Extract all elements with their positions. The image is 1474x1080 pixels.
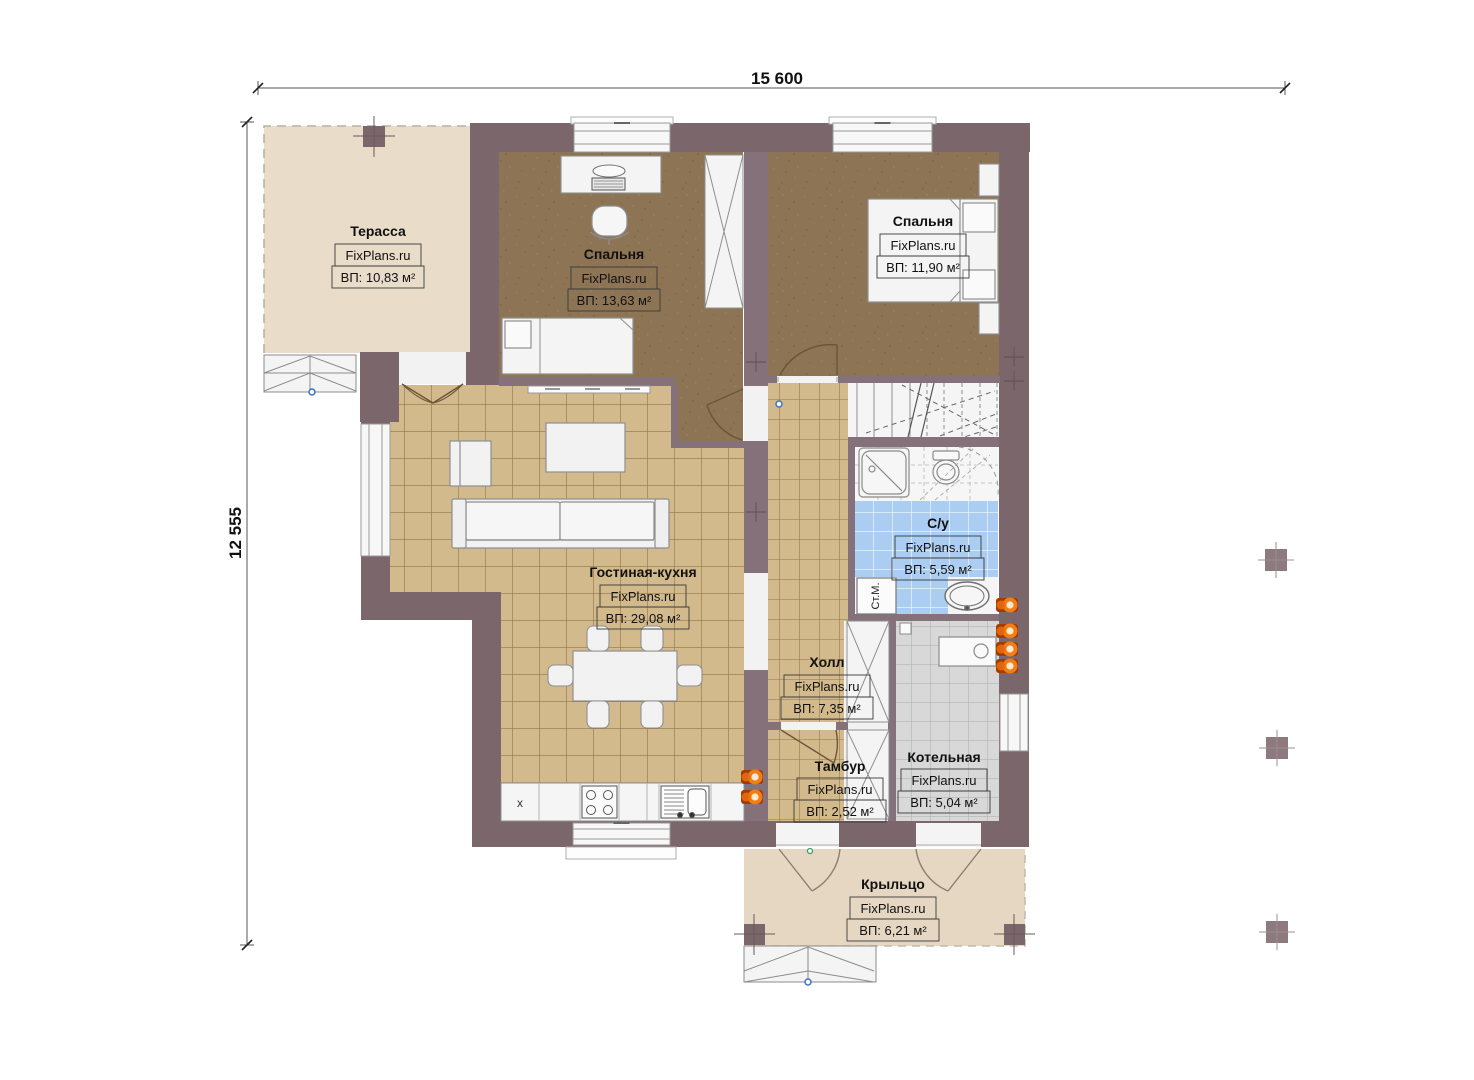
svg-text:FixPlans.ru: FixPlans.ru (581, 271, 646, 286)
svg-text:FixPlans.ru: FixPlans.ru (860, 901, 925, 916)
svg-text:ВП: 5,59 м²: ВП: 5,59 м² (904, 562, 972, 577)
svg-text:FixPlans.ru: FixPlans.ru (807, 782, 872, 797)
svg-text:15 600: 15 600 (751, 69, 803, 88)
svg-text:ВП: 5,04 м²: ВП: 5,04 м² (910, 795, 978, 810)
svg-text:ВП: 29,08 м²: ВП: 29,08 м² (606, 611, 681, 626)
svg-text:ВП: 11,90 м²: ВП: 11,90 м² (886, 260, 960, 275)
svg-text:Спальня: Спальня (584, 246, 644, 262)
svg-text:12 555: 12 555 (226, 507, 245, 559)
svg-text:С/у: С/у (927, 515, 949, 531)
svg-text:Тамбур: Тамбур (815, 758, 866, 774)
svg-text:Спальня: Спальня (893, 213, 953, 229)
svg-text:Котельная: Котельная (907, 749, 980, 765)
svg-text:FixPlans.ru: FixPlans.ru (905, 540, 970, 555)
svg-text:Крыльцо: Крыльцо (861, 876, 925, 892)
svg-text:Холл: Холл (809, 654, 844, 670)
svg-text:ВП: 6,21 м²: ВП: 6,21 м² (859, 923, 927, 938)
svg-text:ВП: 2,52 м²: ВП: 2,52 м² (806, 804, 874, 819)
svg-text:FixPlans.ru: FixPlans.ru (345, 248, 410, 263)
svg-text:х: х (517, 796, 523, 810)
svg-text:FixPlans.ru: FixPlans.ru (794, 679, 859, 694)
svg-text:FixPlans.ru: FixPlans.ru (610, 589, 675, 604)
svg-text:ВП: 10,83 м²: ВП: 10,83 м² (341, 270, 416, 285)
svg-text:ВП: 7,35 м²: ВП: 7,35 м² (793, 701, 861, 716)
svg-text:Терасса: Терасса (350, 223, 406, 239)
svg-text:Гостиная-кухня: Гостиная-кухня (589, 564, 696, 580)
svg-text:FixPlans.ru: FixPlans.ru (911, 773, 976, 788)
svg-text:Ст.М.: Ст.М. (870, 582, 882, 609)
svg-text:FixPlans.ru: FixPlans.ru (890, 238, 955, 253)
svg-text:ВП: 13,63 м²: ВП: 13,63 м² (577, 293, 652, 308)
